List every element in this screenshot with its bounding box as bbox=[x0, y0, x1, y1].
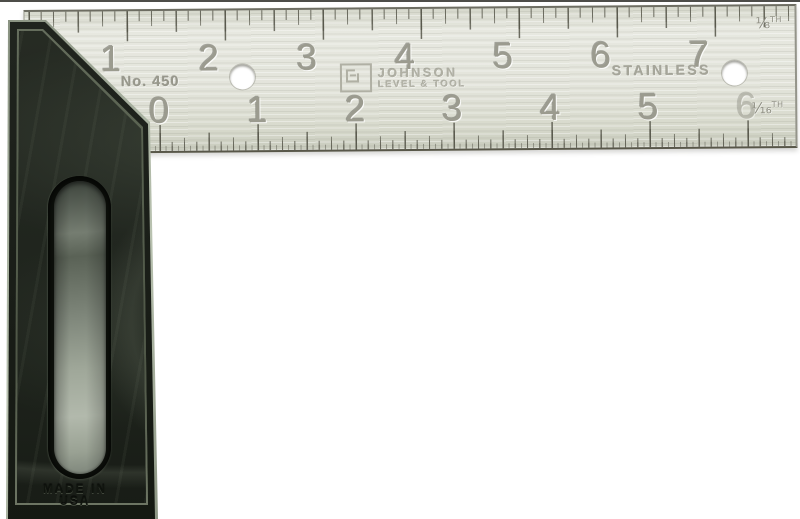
handle-grip-groove-inner bbox=[54, 181, 106, 474]
handle-grip-groove bbox=[48, 176, 111, 479]
handle-face bbox=[0, 0, 800, 519]
try-square-photo: 1 2 3 4 5 6 7 0 1 2 3 4 5 6 No. 450 JOHN… bbox=[0, 0, 800, 519]
origin-embossing: MADE IN USA bbox=[26, 484, 124, 508]
handle: MADE IN USA bbox=[0, 0, 800, 519]
